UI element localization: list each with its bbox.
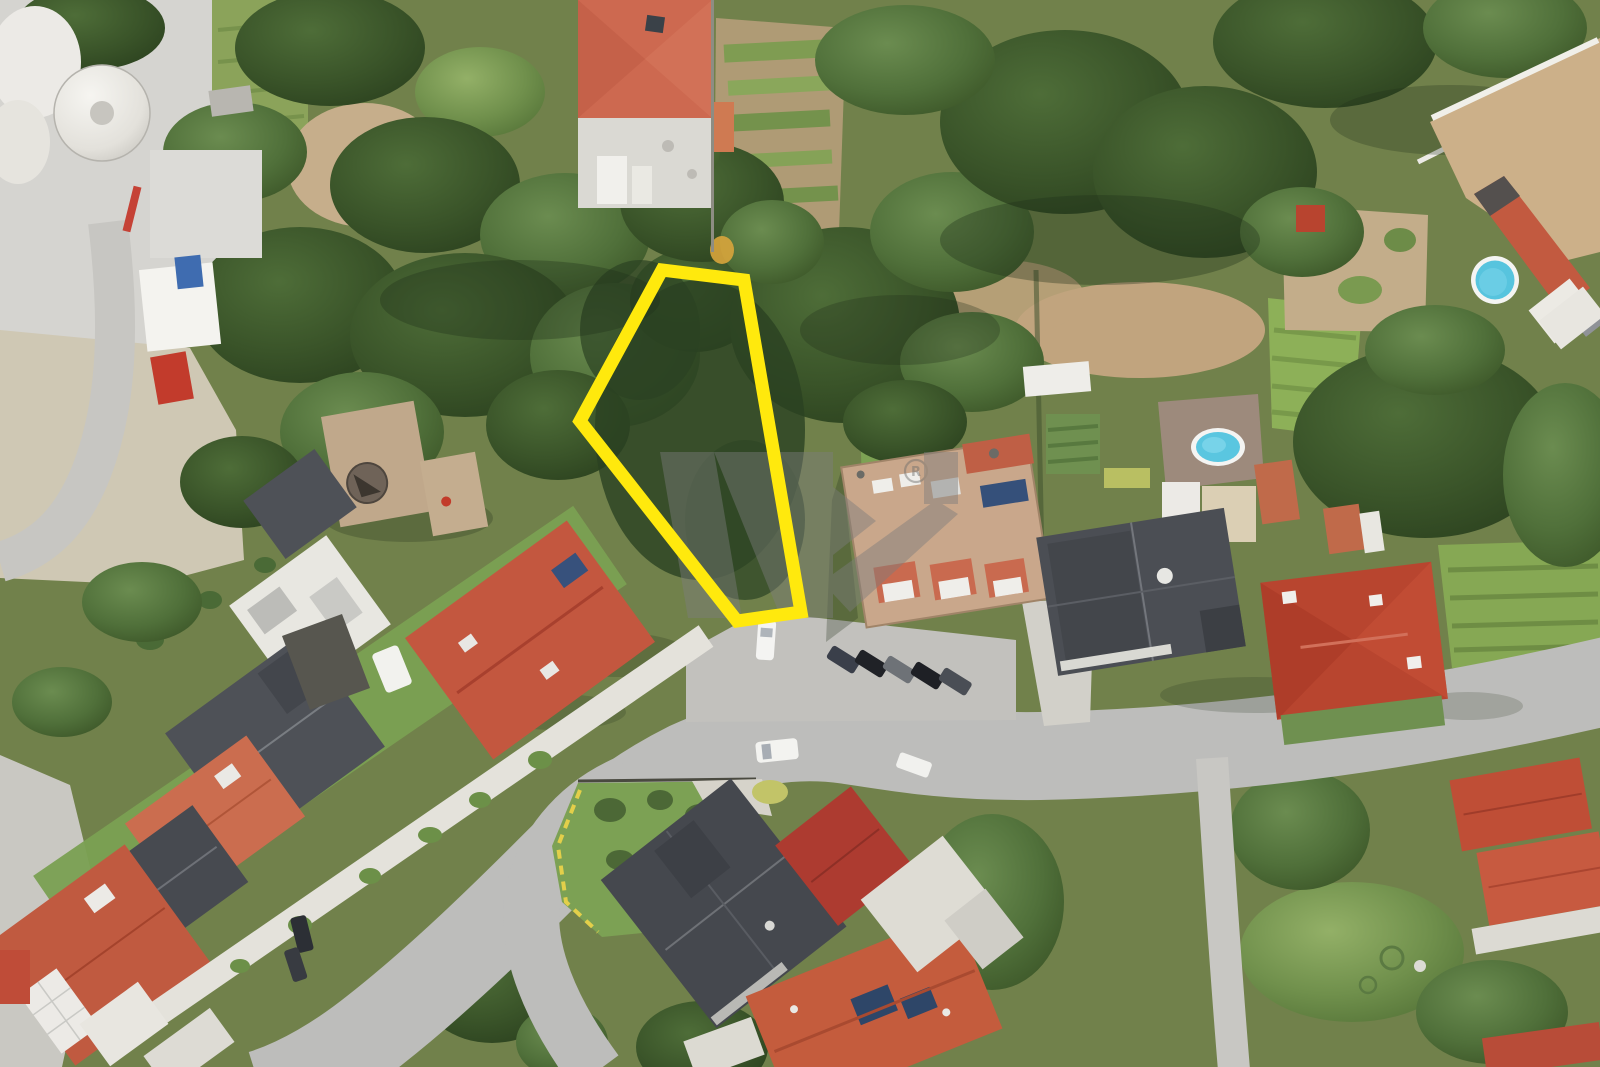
white-van bbox=[755, 738, 799, 763]
garden-well bbox=[1414, 960, 1426, 972]
terracotta-garage bbox=[1323, 504, 1365, 555]
flower-row bbox=[1104, 468, 1150, 488]
tree bbox=[12, 667, 112, 737]
tree-shadow bbox=[800, 295, 1000, 365]
white-shed bbox=[632, 166, 652, 204]
chimney bbox=[1407, 656, 1422, 670]
dark-house bbox=[1036, 508, 1246, 676]
narrow-lane bbox=[1212, 758, 1234, 1067]
shrub bbox=[752, 780, 788, 804]
aerial-map-view: R bbox=[0, 0, 1600, 1067]
van-windshield bbox=[761, 744, 772, 760]
terrace-garden bbox=[418, 827, 442, 843]
yard-well bbox=[662, 140, 674, 152]
tree bbox=[720, 200, 824, 284]
pool-highlight bbox=[1479, 268, 1507, 296]
white-shed bbox=[1023, 361, 1091, 397]
car-windshield bbox=[760, 628, 773, 638]
terrace-garden bbox=[230, 959, 250, 973]
tree-shadow bbox=[940, 195, 1260, 285]
chimney bbox=[1369, 594, 1383, 607]
terrace-garden bbox=[528, 751, 552, 769]
blue-container bbox=[174, 255, 203, 290]
tree bbox=[1230, 770, 1370, 890]
terrace-garden bbox=[469, 792, 491, 808]
satellite-basemap: R bbox=[0, 0, 1600, 1067]
annex-roof bbox=[712, 102, 734, 152]
van-body bbox=[755, 738, 799, 763]
yard-well bbox=[687, 169, 697, 179]
white-shed bbox=[597, 156, 627, 204]
car-body bbox=[756, 619, 777, 660]
garden-bush bbox=[1384, 228, 1416, 252]
red-shed bbox=[0, 950, 30, 1004]
chimney bbox=[1282, 591, 1297, 605]
white-car bbox=[756, 619, 777, 660]
chimney bbox=[645, 15, 665, 33]
pool-highlight bbox=[1202, 437, 1226, 453]
registered-trademark-symbol: R bbox=[911, 465, 921, 480]
tree bbox=[815, 5, 995, 115]
tree bbox=[82, 562, 202, 642]
roof-low-section bbox=[1200, 605, 1246, 653]
concrete-pad bbox=[150, 150, 262, 258]
boundary-wall bbox=[711, 0, 714, 252]
hedge bbox=[254, 557, 276, 573]
island-bush bbox=[647, 790, 673, 810]
tree bbox=[1365, 305, 1505, 395]
tree-shadow bbox=[380, 260, 660, 340]
red-hut bbox=[1296, 205, 1325, 232]
island-bush bbox=[594, 798, 626, 822]
red-house bbox=[1260, 562, 1451, 746]
tank-hatch bbox=[90, 101, 114, 125]
garden-bush bbox=[1338, 276, 1382, 304]
terrace-garden bbox=[359, 868, 381, 884]
